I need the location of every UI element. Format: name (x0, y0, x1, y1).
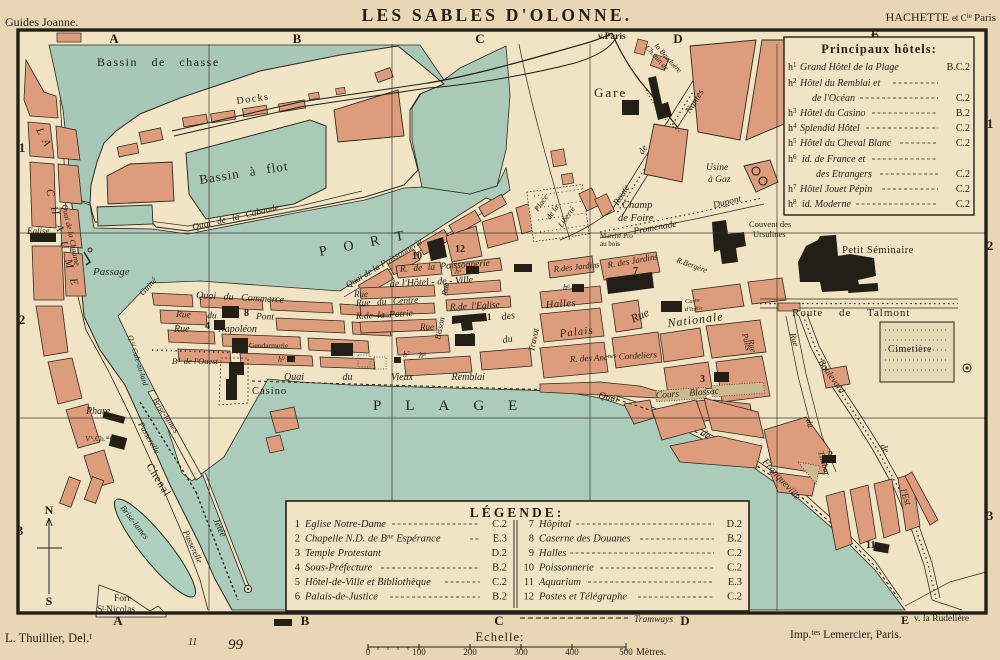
svg-text:2: 2 (987, 238, 994, 253)
svg-text:11: 11 (188, 637, 197, 648)
svg-text:D: D (673, 31, 682, 46)
svg-text:A: A (113, 613, 123, 628)
svg-text:10: 10 (524, 563, 535, 574)
svg-text:Pont: Pont (255, 312, 275, 323)
svg-text:Rue Napoléon: Rue Napoléon (173, 324, 257, 335)
svg-text:LES SABLES D'OLONNE.: LES SABLES D'OLONNE. (362, 5, 633, 25)
svg-text:C.2: C.2 (956, 123, 970, 134)
svg-text:de Foire: de Foire (618, 213, 654, 224)
svg-text:Marché Pro: Marché Pro (600, 232, 633, 240)
svg-text:Usine: Usine (706, 163, 728, 173)
svg-text:C.2: C.2 (956, 199, 970, 210)
svg-text:L. Thuillier, Del.t: L. Thuillier, Del.t (5, 631, 92, 645)
svg-text:C.2: C.2 (727, 548, 742, 559)
svg-text:10: 10 (412, 251, 422, 262)
svg-text:à Gaz: à Gaz (708, 175, 731, 185)
svg-text:C.2: C.2 (727, 592, 742, 603)
svg-text:Quai du Vieux Remblai: Quai du Vieux Remblai (284, 372, 485, 383)
svg-text:Halles: Halles (538, 548, 566, 559)
svg-text:2: 2 (19, 312, 26, 327)
svg-text:C.2: C.2 (727, 563, 742, 574)
svg-text:Hôtel du Casino: Hôtel du Casino (799, 108, 866, 119)
svg-text:99: 99 (228, 637, 244, 653)
svg-text:Palais-de-Justice: Palais-de-Justice (304, 592, 378, 603)
svg-text:200: 200 (463, 647, 477, 657)
svg-text:S: S (46, 594, 53, 608)
svg-text:300: 300 (514, 647, 528, 657)
svg-text:Casino: Casino (252, 386, 287, 397)
svg-text:Passage: Passage (92, 266, 130, 278)
svg-text:Bassin de chasse: Bassin de chasse (97, 55, 220, 69)
svg-text:B: B (293, 31, 302, 46)
svg-text:1: 1 (19, 140, 26, 155)
svg-text:Echelle:: Echelle: (476, 630, 525, 644)
svg-text:E: E (901, 613, 909, 627)
svg-text:8: 8 (244, 308, 249, 319)
svg-text:E: E (871, 27, 879, 41)
svg-text:4: 4 (295, 563, 301, 574)
svg-text:Hôtel-de-Ville et Bibliothèque: Hôtel-de-Ville et Bibliothèque (304, 577, 431, 588)
svg-text:11: 11 (524, 577, 534, 588)
svg-text:D.2: D.2 (492, 548, 507, 559)
svg-text:C.2: C.2 (492, 519, 507, 530)
svg-text:9: 9 (529, 548, 534, 559)
svg-text:C.2: C.2 (956, 184, 970, 195)
svg-text:D: D (680, 613, 689, 628)
svg-text:E.3: E.3 (728, 577, 742, 588)
svg-text:C.2: C.2 (492, 577, 507, 588)
svg-text:Phare: Phare (85, 406, 111, 417)
svg-text:Cimetière: Cimetière (888, 344, 932, 355)
svg-text:Postes et Télégraphe: Postes et Télégraphe (538, 592, 627, 603)
svg-text:Poissonnerie: Poissonnerie (538, 563, 594, 574)
svg-text:du: du (502, 334, 513, 346)
svg-text:Eglise: Eglise (26, 226, 50, 236)
svg-text:Route de Talmont: Route de Talmont (792, 307, 910, 319)
svg-text:B.2: B.2 (492, 563, 507, 574)
svg-text:Gare: Gare (594, 85, 627, 100)
svg-text:B.2: B.2 (727, 534, 742, 545)
svg-text:5: 5 (295, 577, 300, 588)
svg-text:B.2: B.2 (956, 108, 970, 119)
svg-text:Ursulines: Ursulines (753, 229, 786, 239)
svg-text:9: 9 (470, 332, 475, 343)
svg-text:Temple Protestant: Temple Protestant (305, 548, 382, 559)
svg-text:HACHETTE et Cie Paris: HACHETTE et Cie Paris (886, 10, 996, 24)
svg-text:3: 3 (17, 523, 24, 538)
svg-text:Caserne des Douanes: Caserne des Douanes (539, 534, 631, 545)
svg-text:des: des (501, 310, 516, 323)
svg-text:500: 500 (619, 647, 633, 657)
svg-text:Eglise Notre-Dame: Eglise Notre-Dame (304, 519, 386, 530)
svg-text:id. Moderne: id. Moderne (802, 199, 851, 210)
svg-text:B.2: B.2 (492, 592, 507, 603)
svg-text:Principaux hôtels:: Principaux hôtels: (821, 42, 937, 56)
svg-text:Champ: Champ (622, 200, 652, 211)
svg-text:2: 2 (295, 534, 300, 545)
svg-text:v. la Rudelière: v. la Rudelière (914, 614, 969, 624)
svg-text:C.2: C.2 (956, 93, 970, 104)
svg-text:11: 11 (866, 540, 875, 551)
svg-text:Petit Séminaire: Petit Séminaire (842, 245, 914, 256)
svg-text:1: 1 (987, 116, 994, 131)
svg-text:Couvent des: Couvent des (749, 219, 791, 229)
svg-text:400: 400 (565, 647, 579, 657)
svg-text:C: C (494, 613, 503, 628)
svg-text:Grand Hôtel de la Plage: Grand Hôtel de la Plage (800, 62, 899, 73)
svg-text:12: 12 (524, 592, 535, 603)
svg-text:Mètres.: Mètres. (636, 647, 666, 658)
svg-text:Rue du: Rue du (175, 310, 217, 321)
svg-text:au bois: au bois (600, 240, 620, 248)
svg-text:Hôtel Jouet Pépin: Hôtel Jouet Pépin (799, 184, 872, 195)
svg-text:B: B (301, 613, 310, 628)
svg-text:1: 1 (487, 312, 492, 322)
svg-text:Fort: Fort (114, 594, 130, 604)
svg-text:Rue: Rue (419, 322, 434, 332)
svg-text:6: 6 (295, 592, 300, 603)
svg-text:D.2: D.2 (727, 519, 742, 530)
svg-text:E.3: E.3 (493, 534, 507, 545)
svg-text:Hôtel du Remblai et: Hôtel du Remblai et (799, 78, 880, 89)
svg-text:4: 4 (205, 321, 210, 332)
svg-text:des Etrangers: des Etrangers (816, 169, 872, 180)
svg-text:v.Paris: v.Paris (598, 32, 626, 42)
svg-text:Sous-Préfecture: Sous-Préfecture (305, 563, 373, 574)
svg-text:C.2: C.2 (956, 169, 970, 180)
svg-text:C: C (475, 31, 484, 46)
svg-text:Hôtel du Cheval Blanc: Hôtel du Cheval Blanc (799, 138, 892, 149)
svg-text:6: 6 (342, 345, 347, 356)
svg-text:B.C.2: B.C.2 (947, 62, 970, 73)
svg-text:LÉGENDE:: LÉGENDE: (470, 505, 565, 520)
svg-text:7: 7 (529, 519, 534, 530)
svg-text:Halles: Halles (544, 298, 576, 311)
svg-text:Imp.tes Lemercier, Paris.: Imp.tes Lemercier, Paris. (790, 628, 902, 641)
svg-text:Hôpital: Hôpital (538, 519, 571, 530)
svg-text:id. de France et: id. de France et (802, 154, 866, 165)
svg-text:1: 1 (295, 519, 300, 530)
svg-text:Guides Joanne.: Guides Joanne. (5, 15, 78, 29)
svg-text:12: 12 (455, 244, 465, 255)
svg-text:N: N (45, 503, 54, 517)
svg-text:7: 7 (633, 266, 638, 277)
svg-text:Splendid Hôtel: Splendid Hôtel (800, 123, 860, 134)
svg-text:A: A (109, 31, 119, 46)
svg-text:de l'Océan: de l'Océan (812, 93, 855, 104)
svg-text:3: 3 (987, 508, 994, 523)
svg-text:Aquarium: Aquarium (538, 577, 581, 588)
svg-text:8: 8 (529, 534, 534, 545)
svg-text:Tramways: Tramways (634, 615, 673, 625)
svg-text:100: 100 (412, 647, 426, 657)
svg-text:Chapelle N.D. de Bne Espérance: Chapelle N.D. de Bne Espérance (305, 533, 441, 545)
svg-text:PLAGE: PLAGE (373, 398, 541, 414)
svg-text:3: 3 (700, 374, 705, 385)
svg-text:0: 0 (366, 647, 371, 657)
svg-text:Gendarmerie: Gendarmerie (249, 341, 289, 350)
svg-text:C.2: C.2 (956, 138, 970, 149)
svg-text:3: 3 (295, 548, 300, 559)
